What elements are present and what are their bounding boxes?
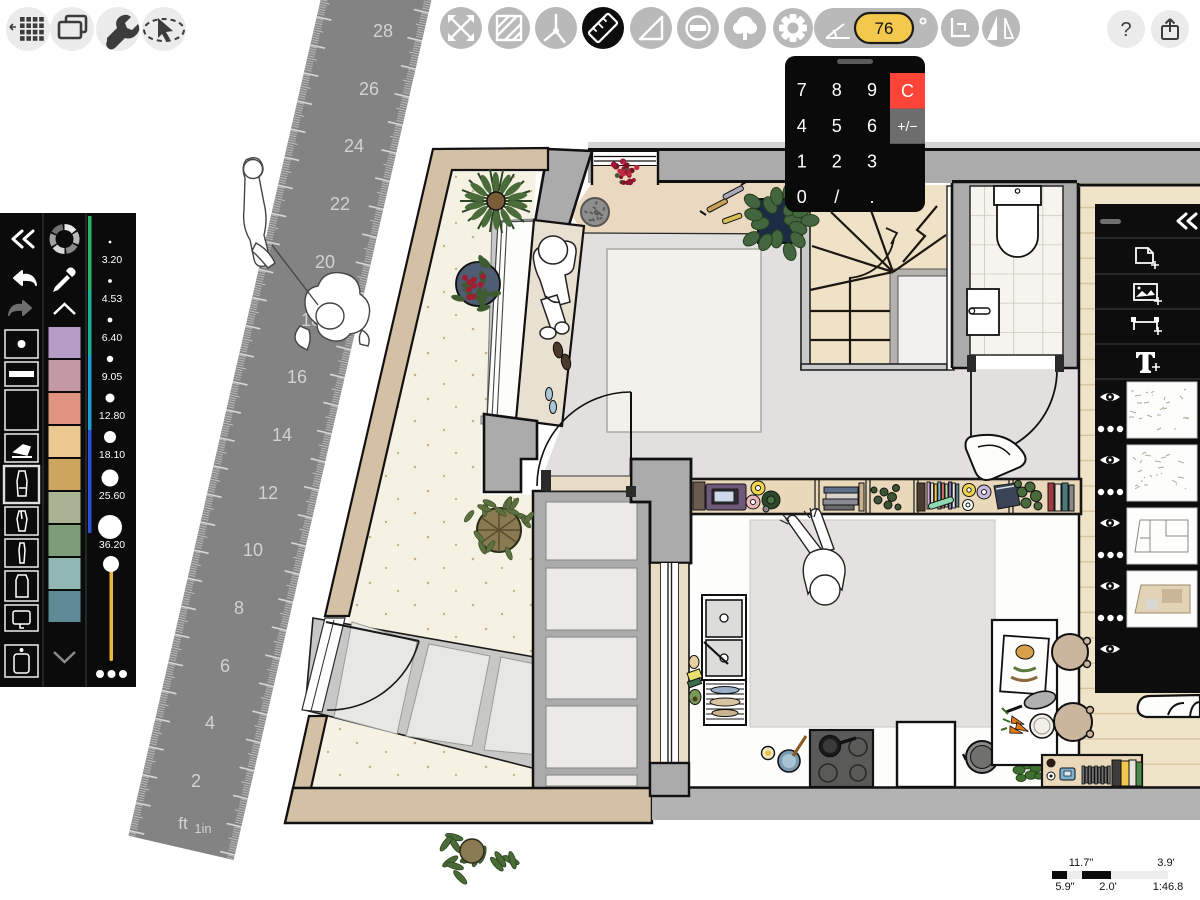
svg-text:6.40: 6.40 (102, 332, 123, 344)
svg-text:76: 76 (875, 19, 894, 38)
svg-text:?: ? (1120, 19, 1131, 41)
svg-text:2: 2 (191, 771, 201, 791)
svg-text:4: 4 (797, 116, 807, 136)
svg-text:1in: 1in (194, 821, 211, 836)
svg-text:3.9': 3.9' (1157, 857, 1174, 869)
svg-text:2.0': 2.0' (1099, 881, 1116, 893)
svg-text:26: 26 (359, 79, 379, 99)
svg-text:10: 10 (243, 540, 263, 560)
svg-text:6: 6 (867, 116, 877, 136)
svg-text:8: 8 (832, 80, 842, 100)
svg-text:1: 1 (797, 152, 807, 172)
svg-text:.: . (869, 187, 874, 207)
svg-text:20: 20 (315, 252, 335, 272)
svg-text:6: 6 (220, 656, 230, 676)
svg-text:28: 28 (373, 21, 393, 41)
svg-text:/: / (834, 187, 839, 207)
svg-text:22: 22 (330, 194, 350, 214)
svg-text:5: 5 (832, 116, 842, 136)
svg-text:36.20: 36.20 (99, 539, 125, 551)
svg-text:16: 16 (287, 367, 307, 387)
svg-text:5.9": 5.9" (1055, 881, 1074, 893)
svg-text:14: 14 (272, 425, 292, 445)
svg-text:ft: ft (178, 814, 188, 833)
svg-text:18.10: 18.10 (99, 449, 125, 461)
svg-text:11.7": 11.7" (1069, 857, 1094, 869)
svg-text:4: 4 (205, 713, 215, 733)
svg-text:7: 7 (797, 80, 807, 100)
svg-text:C: C (901, 81, 914, 101)
svg-text:8: 8 (234, 598, 244, 618)
svg-text:24: 24 (344, 136, 364, 156)
svg-text:1:46.8: 1:46.8 (1153, 881, 1184, 893)
svg-text:12: 12 (258, 483, 278, 503)
svg-text:25.60: 25.60 (99, 490, 125, 502)
svg-text:+/−: +/− (897, 118, 917, 134)
svg-text:3.20: 3.20 (102, 254, 123, 266)
svg-text:2: 2 (832, 152, 842, 172)
svg-text:4.53: 4.53 (102, 293, 123, 305)
svg-text:3: 3 (867, 152, 877, 172)
svg-text:0: 0 (797, 187, 807, 207)
svg-text:9: 9 (867, 80, 877, 100)
svg-text:12.80: 12.80 (99, 410, 125, 422)
svg-text:9.05: 9.05 (102, 371, 123, 383)
